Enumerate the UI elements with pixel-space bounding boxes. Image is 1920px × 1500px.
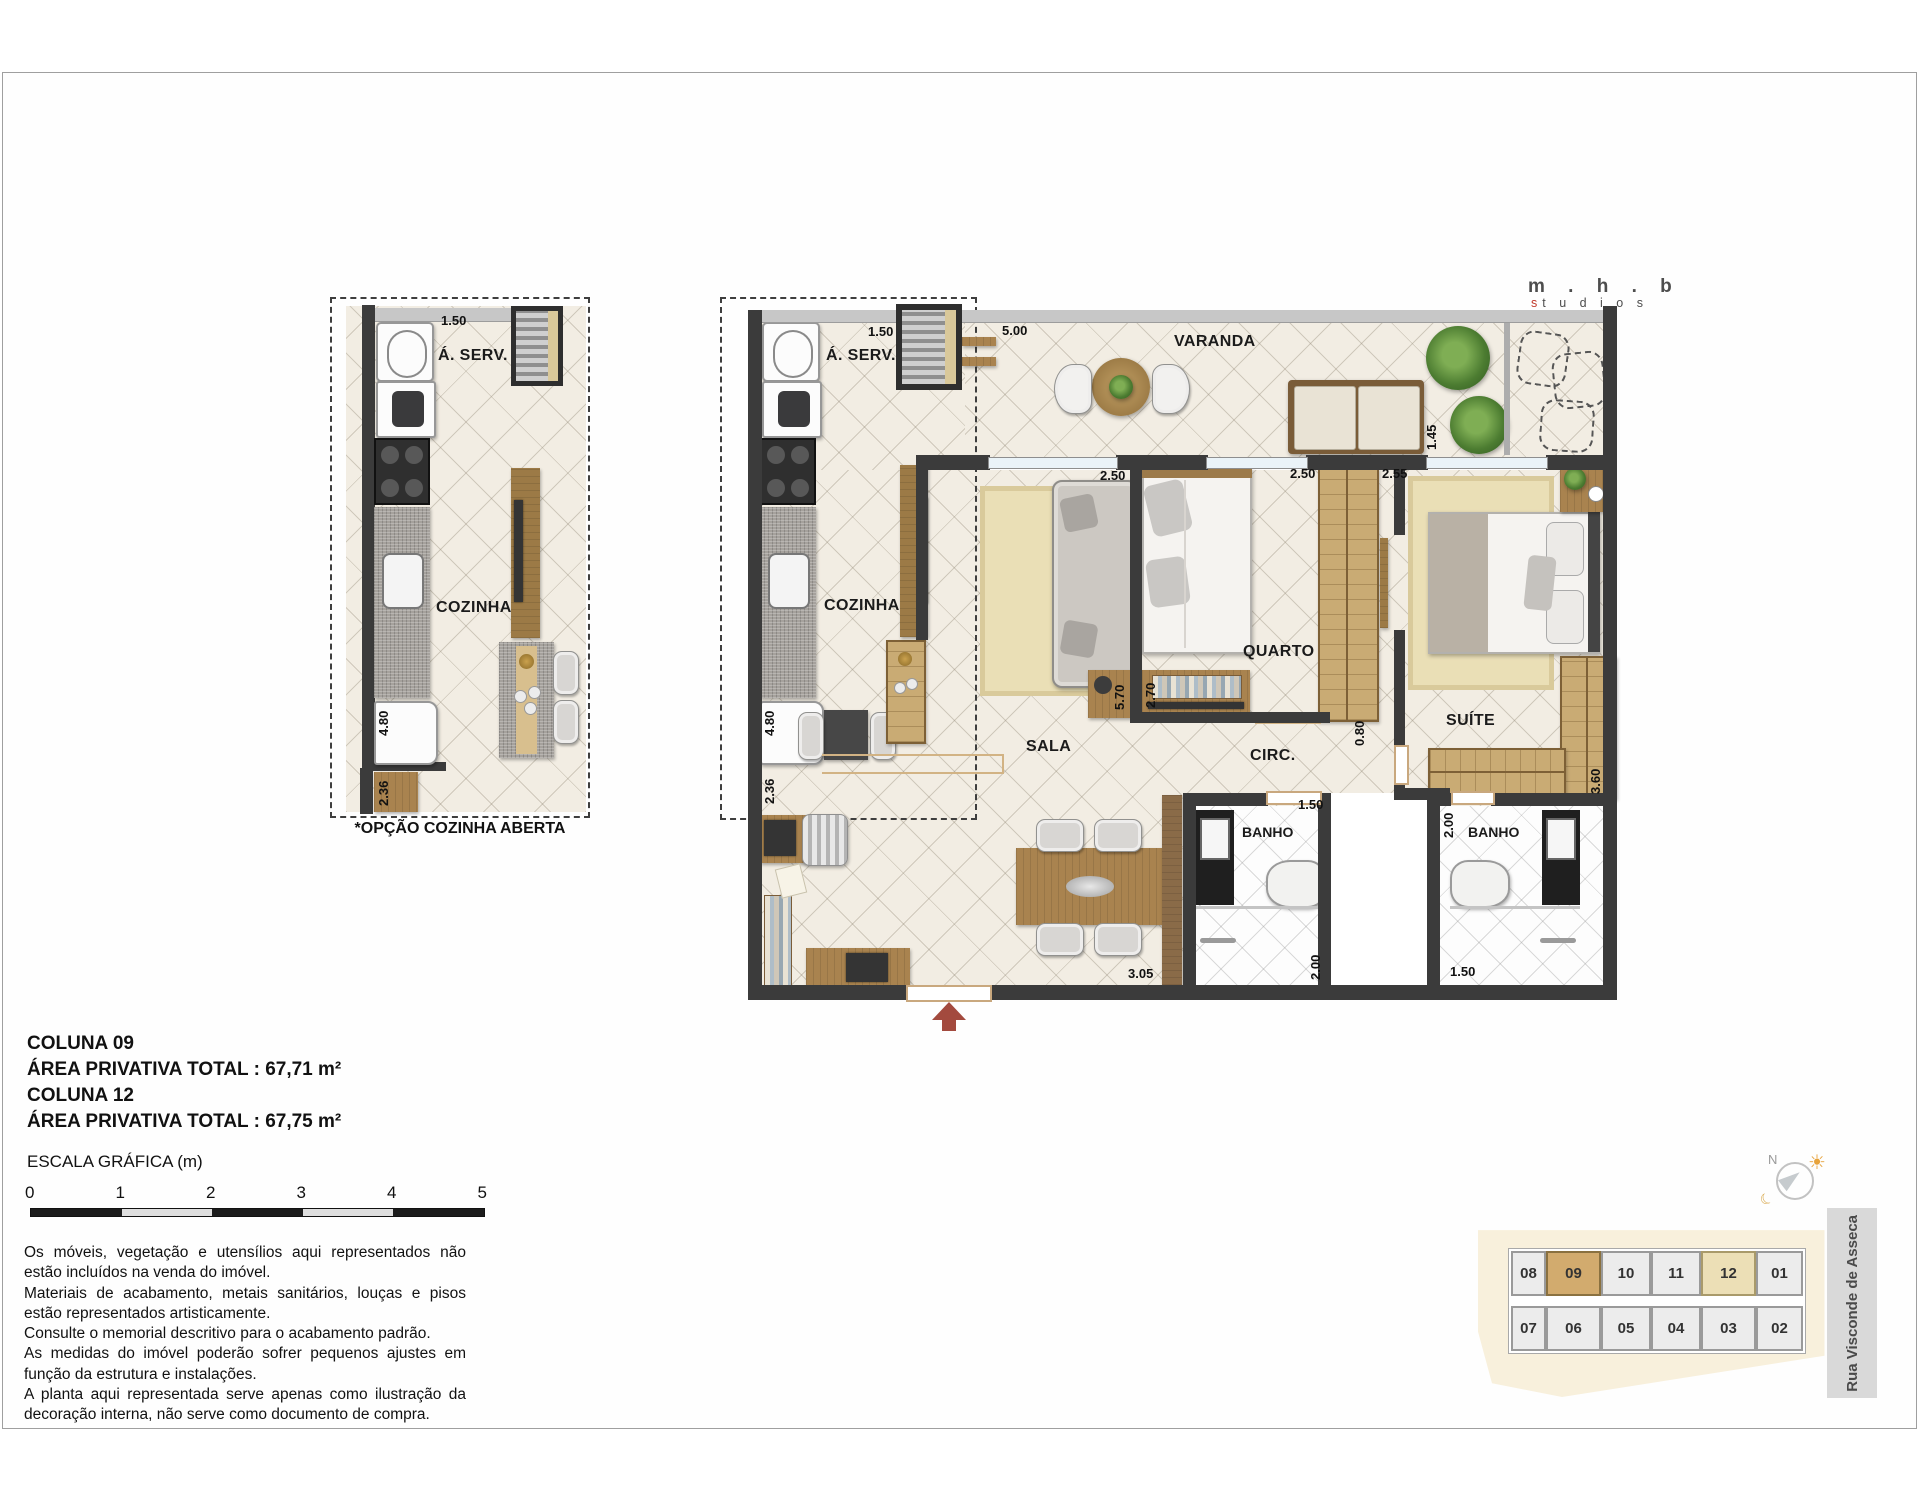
- wall: [1130, 712, 1330, 723]
- unit-01: 01: [1756, 1251, 1803, 1296]
- street-name: Rua Visconde de Asseca: [1844, 1215, 1861, 1392]
- dining-chair: [1036, 923, 1084, 956]
- banho1-vanity: [1196, 810, 1234, 905]
- bed-cushion: [1523, 555, 1556, 612]
- bed-blanket: [1430, 514, 1488, 652]
- plate: [524, 702, 537, 715]
- unit-11: 11: [1651, 1251, 1701, 1296]
- wall: [1603, 306, 1617, 1000]
- dim-label: 2.36: [762, 770, 777, 804]
- scale-tick: 5: [478, 1183, 487, 1203]
- wall: [1116, 455, 1208, 470]
- soundbar: [1148, 702, 1244, 709]
- quarto-bed: [1142, 468, 1252, 654]
- quarto-closet: [1318, 468, 1379, 722]
- bookshelf: [764, 895, 792, 987]
- platter: [1066, 876, 1114, 897]
- door-leaf: [962, 357, 996, 366]
- stool: [553, 651, 579, 695]
- wall: [748, 985, 908, 1000]
- toilet: [1450, 860, 1510, 908]
- unit-07: 07: [1511, 1306, 1546, 1351]
- room-label-cozinha: COZINHA: [436, 599, 512, 617]
- dim-label: 2.36: [376, 772, 391, 806]
- decor-plate: [519, 654, 534, 669]
- dim-label: 2.50: [1100, 468, 1125, 483]
- plate: [894, 682, 906, 694]
- washer-door: [778, 391, 810, 427]
- kitchen-door-swing: [822, 754, 1004, 774]
- laundry-rack: [896, 304, 962, 390]
- compass: N ☀ ☾: [1756, 1150, 1828, 1212]
- shower-divider: [1450, 906, 1580, 909]
- kitchen-sink: [382, 553, 424, 609]
- decor-dashed-shape: [1538, 398, 1595, 454]
- window: [1426, 457, 1548, 469]
- door-leaf: [1380, 538, 1388, 628]
- unit-04: 04: [1651, 1306, 1701, 1351]
- scale-tick: 3: [297, 1183, 306, 1203]
- quarto-shelf: [1142, 670, 1250, 714]
- laundry-tank: [762, 322, 820, 382]
- room-label-cozinha: COZINHA: [824, 597, 900, 615]
- scale-segment: [303, 1209, 394, 1216]
- dim-label: 3.05: [1128, 966, 1153, 981]
- unit-12: 12: [1701, 1251, 1756, 1296]
- room-label-sala: SALA: [1026, 738, 1071, 756]
- dining-table: [1016, 848, 1164, 925]
- dim-label: 5.00: [1002, 323, 1027, 338]
- tv: [514, 500, 523, 602]
- dim-label: 1.50: [1298, 797, 1323, 812]
- laundry-rack: [511, 306, 563, 386]
- room-label-aserv: Á. SERV.: [826, 347, 896, 365]
- disclaimer-line: Os móveis, vegetação e utensílios aqui r…: [24, 1243, 466, 1284]
- street-band: Rua Visconde de Asseca: [1827, 1208, 1877, 1398]
- dim-label: 2.50: [1290, 466, 1315, 481]
- wall: [916, 460, 928, 640]
- disclaimer-line: As medidas do imóvel poderão sofrer pequ…: [24, 1344, 466, 1385]
- kitchen-chair: [798, 712, 824, 760]
- sofa-cushion: [1294, 386, 1356, 450]
- kitchen-island: [499, 642, 554, 758]
- room-label-quarto: QUARTO: [1243, 643, 1314, 661]
- wall: [1130, 470, 1142, 716]
- washer-door: [392, 391, 424, 427]
- coluna09-area: ÁREA PRIVATIVA TOTAL : 67,71 m²: [27, 1059, 341, 1081]
- burner: [405, 479, 423, 497]
- door-threshold: [1394, 745, 1409, 785]
- kitchen-sink: [768, 553, 810, 609]
- shower-head: [1540, 938, 1576, 943]
- dim-label: 2.70: [1143, 672, 1158, 708]
- kitchen-table: [824, 710, 868, 760]
- plate: [514, 690, 527, 703]
- moon-icon: ☾: [1756, 1188, 1777, 1210]
- entrance-arrow-stem: [942, 1019, 956, 1031]
- option-plan-caption: *OPÇÃO COZINHA ABERTA: [310, 820, 610, 838]
- varanda-chair: [1054, 364, 1092, 414]
- wall: [762, 310, 1607, 323]
- closet-divider: [1346, 470, 1348, 720]
- coluna12-title: COLUNA 12: [27, 1085, 134, 1107]
- books: [1152, 675, 1242, 699]
- kitchen-sideboard: [886, 640, 926, 744]
- burner: [381, 446, 399, 464]
- scale-tick: 4: [387, 1183, 396, 1203]
- burner: [405, 446, 423, 464]
- closet-divider: [1430, 771, 1564, 773]
- stove: [760, 438, 816, 505]
- dim-label: 4.80: [762, 700, 777, 736]
- burner: [767, 479, 785, 497]
- scale-ticks: 0 1 2 3 4 5: [25, 1183, 487, 1203]
- floor-plan-page: m . h . b st u d i o s 1.50 Á.: [0, 0, 1920, 1500]
- unit-02: 02: [1756, 1306, 1803, 1351]
- plate: [528, 686, 541, 699]
- dim-label: 1.50: [1450, 964, 1475, 979]
- varanda-divider: [1504, 322, 1510, 455]
- entrance-arrow-icon: [932, 1002, 966, 1020]
- rack-side: [945, 310, 956, 384]
- room-label-aserv: Á. SERV.: [438, 347, 508, 365]
- varanda-round-table: [1092, 358, 1150, 416]
- room-label-banho1: BANHO: [1242, 824, 1293, 840]
- plate: [906, 678, 918, 690]
- shower-head: [1200, 938, 1236, 943]
- nightstand-plant: [1564, 468, 1586, 490]
- stool: [553, 700, 579, 744]
- unit-10: 10: [1601, 1251, 1651, 1296]
- keyplan-row-top: 08 09 10 11 12 01: [1511, 1251, 1803, 1296]
- wall: [360, 768, 373, 814]
- wall: [1491, 793, 1603, 806]
- varanda-chair: [1152, 364, 1190, 414]
- keyplan-building: 08 09 10 11 12 01 07 06 05 04 03 02: [1508, 1248, 1806, 1354]
- sofa-cushion: [1358, 386, 1420, 450]
- scale-segment: [122, 1209, 213, 1216]
- studio-logo: m . h . b: [1528, 276, 1681, 298]
- scale-bar: [30, 1208, 485, 1217]
- coluna12-area: ÁREA PRIVATIVA TOTAL : 67,75 m²: [27, 1111, 341, 1133]
- disclaimer-line: Materiais de acabamento, metais sanitári…: [24, 1284, 466, 1325]
- window: [988, 457, 1118, 469]
- unit-08: 08: [1511, 1251, 1546, 1296]
- decor-plate: [898, 652, 912, 666]
- dim-label: 2.55: [1382, 466, 1407, 481]
- laundry-tank: [376, 322, 434, 382]
- burner: [767, 446, 785, 464]
- door-threshold: [1451, 791, 1495, 805]
- scale-segment: [212, 1209, 303, 1216]
- dim-label: 0.80: [1352, 710, 1367, 746]
- dining-chair: [1094, 819, 1142, 852]
- room-label-banho2: BANHO: [1468, 824, 1519, 840]
- disclaimer-line: A planta aqui representada serve apenas …: [24, 1385, 466, 1426]
- dining-chair: [1036, 819, 1084, 852]
- door-leaf: [962, 337, 996, 346]
- kitchen-counter: [374, 507, 430, 698]
- printer: [846, 953, 888, 982]
- stove: [374, 438, 430, 505]
- service-gap: [1331, 793, 1438, 1000]
- scale-segment: [31, 1209, 122, 1216]
- wall: [1427, 793, 1440, 1000]
- dim-label: 1.45: [1424, 414, 1439, 450]
- unit-06: 06: [1546, 1306, 1601, 1351]
- wall: [1306, 455, 1428, 470]
- room-label-varanda: VARANDA: [1174, 333, 1256, 351]
- hall-panel: [1162, 795, 1182, 985]
- sink: [1546, 818, 1576, 860]
- burner: [791, 446, 809, 464]
- sala-sofa: [1052, 480, 1138, 688]
- room-label-circ: CIRC.: [1250, 747, 1296, 765]
- wall: [986, 985, 1617, 1000]
- shower-divider: [1196, 906, 1318, 909]
- scale-segment: [393, 1209, 484, 1216]
- varanda-plant: [1450, 396, 1508, 454]
- wall: [748, 310, 762, 1000]
- washing-machine: [376, 381, 436, 438]
- sun-icon: ☀: [1808, 1150, 1826, 1175]
- dim-label: 2.00: [1308, 946, 1323, 980]
- rack-side: [548, 311, 558, 381]
- nightstand: [1560, 464, 1608, 512]
- coluna09-title: COLUNA 09: [27, 1033, 134, 1055]
- unit-05: 05: [1601, 1306, 1651, 1351]
- washing-machine: [762, 381, 822, 438]
- scale-tick: 0: [25, 1183, 34, 1203]
- compass-north-label: N: [1768, 1152, 1777, 1167]
- sofa-pillow: [1059, 493, 1099, 533]
- laptop: [764, 820, 796, 856]
- burner: [791, 479, 809, 497]
- studio-logo-sub: st u d i o s: [1531, 296, 1648, 310]
- dim-label: 1.50: [441, 313, 466, 328]
- sofa-pillow: [1059, 619, 1098, 658]
- tank-basin: [387, 330, 427, 378]
- unit-09: 09: [1546, 1251, 1601, 1296]
- table-plant: [1109, 375, 1133, 399]
- dim-label: 1.50: [868, 324, 893, 339]
- disclaimer-line: Consulte o memorial descritivo para o ac…: [24, 1324, 466, 1344]
- wall: [1546, 455, 1617, 470]
- banho2-vanity: [1542, 810, 1580, 905]
- tank-basin: [773, 330, 813, 378]
- entrance-threshold: [906, 985, 992, 1002]
- keyplan-row-bottom: 07 06 05 04 03 02: [1511, 1306, 1803, 1351]
- kitchen-counter: [760, 507, 816, 698]
- burner: [381, 479, 399, 497]
- varanda-plant: [1426, 326, 1490, 390]
- bed-fold: [1184, 480, 1186, 648]
- office-chair: [802, 814, 848, 866]
- cup: [1588, 486, 1604, 502]
- scale-tick: 2: [206, 1183, 215, 1203]
- suite-bed: [1428, 512, 1600, 654]
- dim-label: 3.60: [1588, 760, 1603, 794]
- dim-label: 5.70: [1112, 674, 1127, 710]
- room-label-suite: SUÍTE: [1446, 712, 1495, 730]
- unit-03: 03: [1701, 1306, 1756, 1351]
- dim-label: 2.00: [1441, 804, 1456, 838]
- scale-title: ESCALA GRÁFICA (m): [27, 1152, 203, 1172]
- dining-chair: [1094, 923, 1142, 956]
- wall: [1183, 793, 1196, 1000]
- dim-label: 4.80: [376, 700, 391, 736]
- logo-accent-letter: s: [1531, 296, 1542, 310]
- table-lamp: [1094, 676, 1112, 694]
- toilet: [1266, 860, 1326, 908]
- varanda-sofa: [1288, 380, 1424, 454]
- scale-tick: 1: [116, 1183, 125, 1203]
- headboard: [1588, 512, 1600, 652]
- disclaimer-text: Os móveis, vegetação e utensílios aqui r…: [24, 1243, 466, 1426]
- sink: [1200, 818, 1230, 860]
